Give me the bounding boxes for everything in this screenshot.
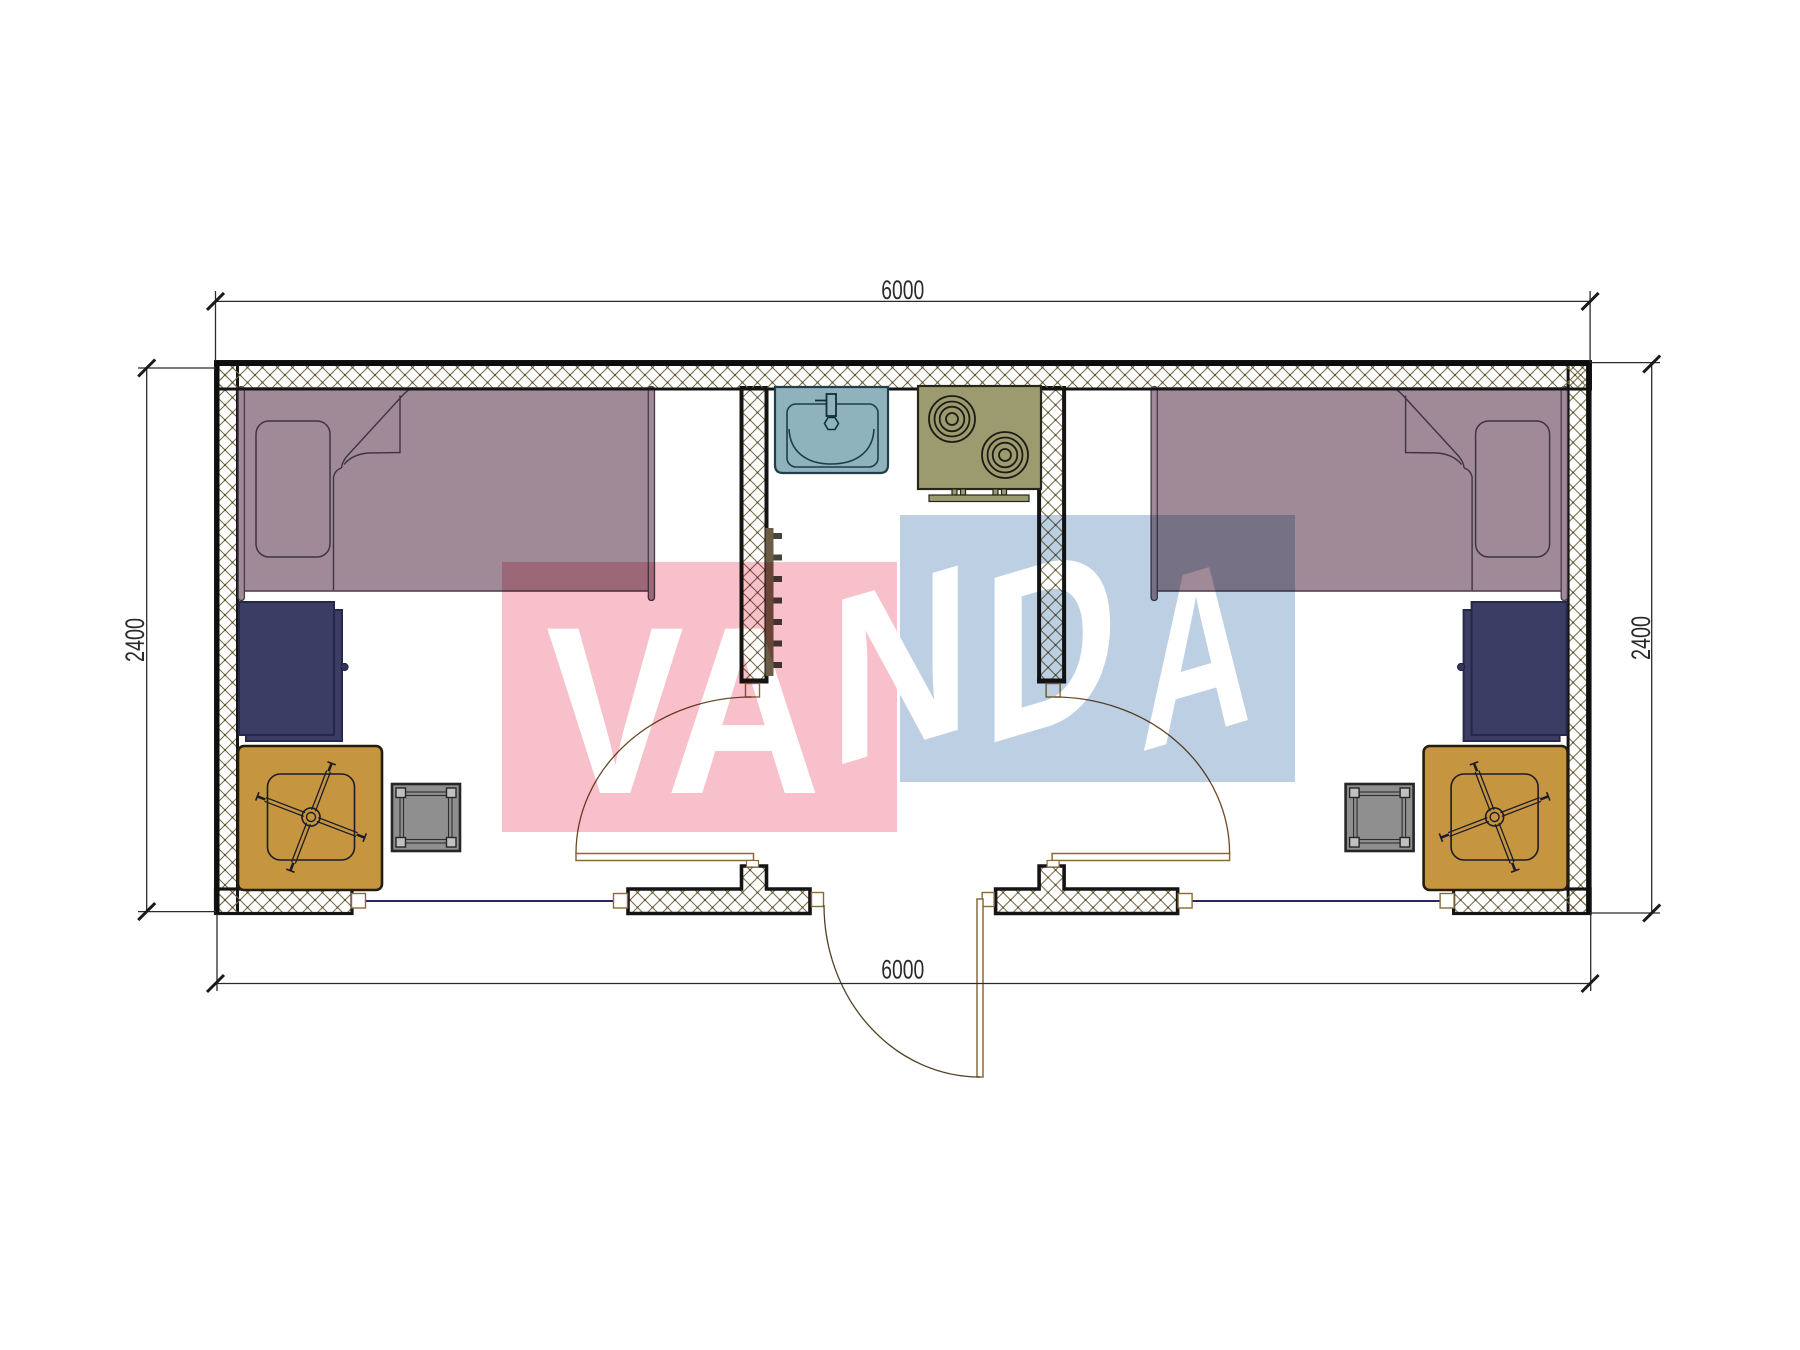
svg-text:6000: 6000 [881, 275, 924, 305]
svg-text:6000: 6000 [881, 955, 924, 985]
svg-text:2400: 2400 [1626, 616, 1656, 660]
svg-text:2400: 2400 [120, 618, 150, 662]
